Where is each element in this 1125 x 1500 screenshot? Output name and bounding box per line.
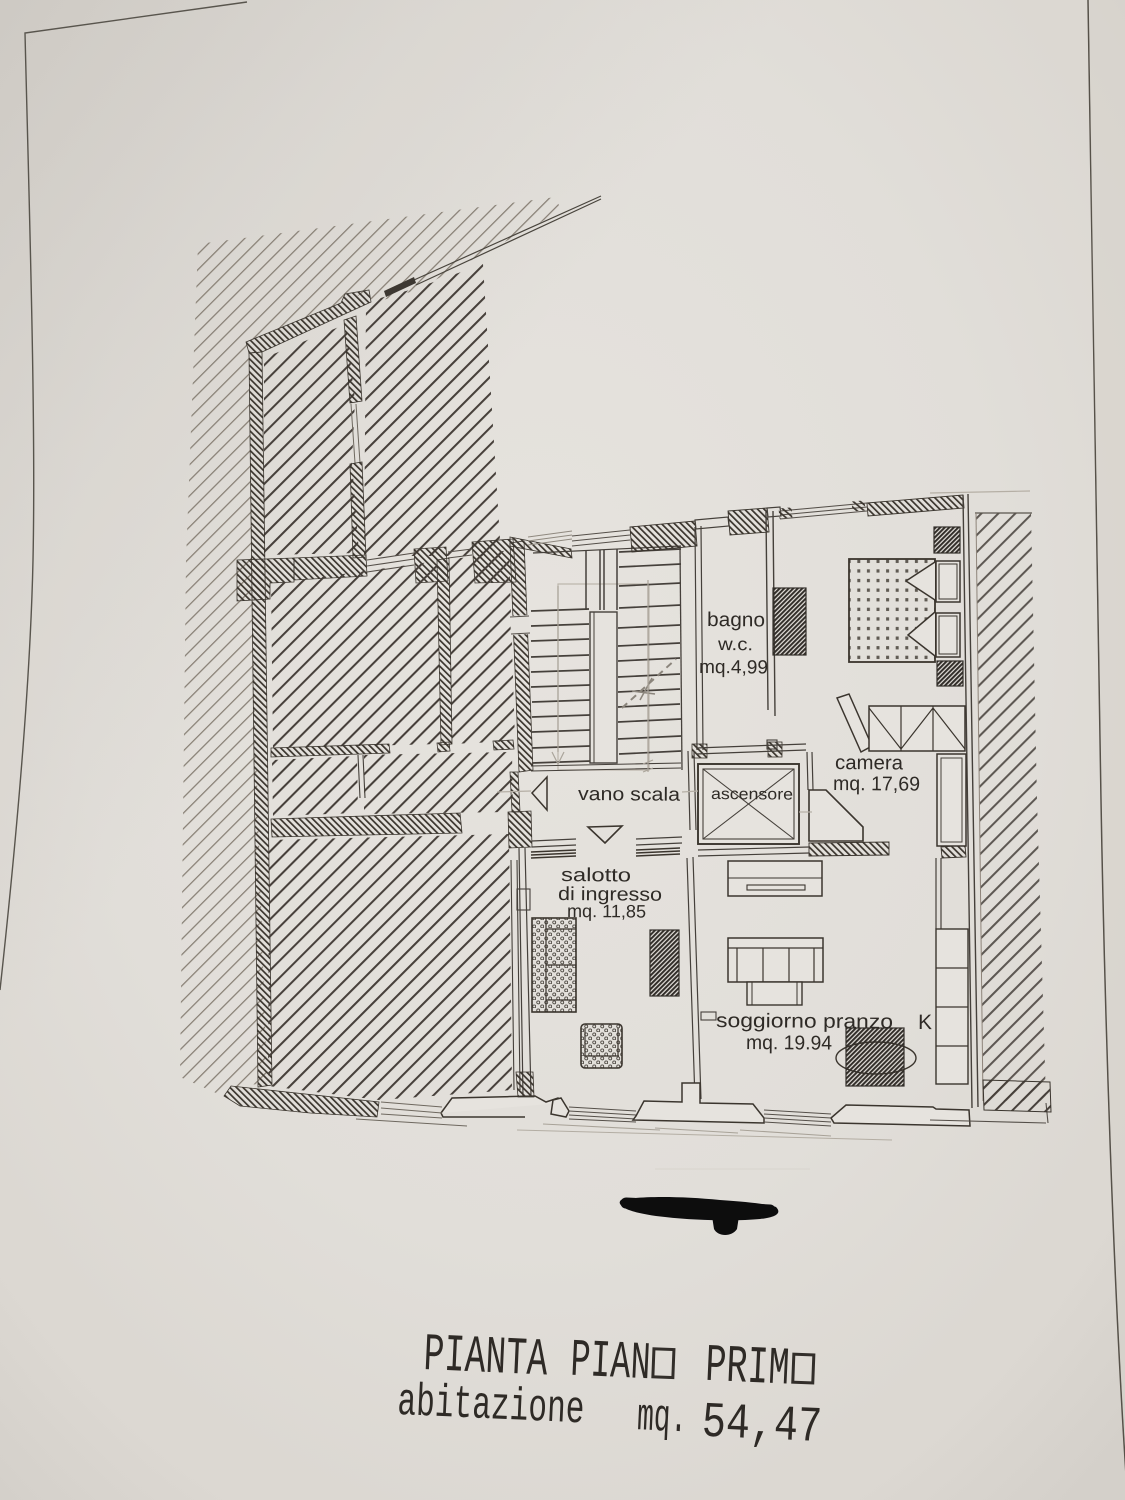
svg-text:K: K: [918, 1011, 932, 1034]
svg-text:w.c.: w.c.: [717, 634, 753, 654]
svg-text:mq.: mq.: [636, 1391, 688, 1445]
svg-text:mq. 19.94: mq. 19.94: [746, 1032, 832, 1055]
svg-text:camera: camera: [835, 752, 904, 774]
svg-text:mq. 17,69: mq. 17,69: [833, 773, 920, 796]
svg-text:54,47: 54,47: [701, 1395, 823, 1457]
svg-text:ascensore: ascensore: [711, 786, 793, 804]
svg-text:mq. 11,85: mq. 11,85: [567, 901, 646, 922]
svg-text:abitazione: abitazione: [396, 1376, 585, 1436]
svg-text:bagno: bagno: [707, 609, 765, 631]
svg-text:mq.4,99: mq.4,99: [699, 657, 768, 678]
svg-text:vano scala: vano scala: [578, 784, 681, 806]
svg-text:PRIM: PRIM: [704, 1336, 791, 1400]
